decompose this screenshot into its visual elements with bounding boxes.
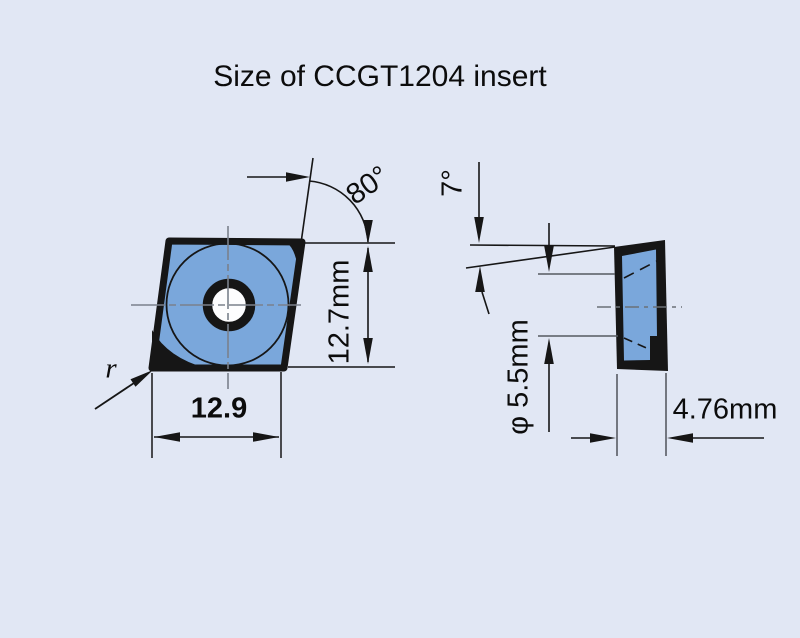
- arrowhead: [363, 338, 373, 364]
- dim-7deg-lines: [466, 162, 615, 314]
- dim-hole-diameter-label: φ 5.5mm: [505, 319, 534, 435]
- horizontal-reference-line: [470, 245, 615, 246]
- dim-width-label: 12.9: [191, 395, 247, 424]
- dim-hole-lines: [538, 223, 618, 432]
- dim-height-label: 12.7mm: [326, 260, 355, 365]
- arrowhead: [286, 172, 310, 182]
- arrowhead: [544, 246, 554, 272]
- dim-relief-angle-label: 7°: [439, 169, 468, 197]
- technical-drawing: [0, 0, 800, 638]
- edge-extension-line: [301, 158, 313, 243]
- arrowhead: [154, 432, 180, 442]
- arrowhead: [363, 246, 373, 272]
- drawing-canvas: Size of CCGT1204 insert 80° 12.7mm 12.9 …: [0, 0, 800, 638]
- arrowhead: [474, 217, 484, 243]
- leader-line: [95, 381, 137, 409]
- drawing-title: Size of CCGT1204 insert: [213, 62, 546, 92]
- front-view: [131, 226, 303, 389]
- arrowhead: [475, 266, 485, 292]
- corner-radius-label: r: [105, 355, 116, 384]
- arrowhead: [590, 433, 616, 443]
- slanted-edge-line: [466, 247, 615, 268]
- arrowhead: [363, 220, 373, 244]
- arrowhead: [667, 433, 693, 443]
- arrowhead: [131, 370, 154, 387]
- arrowhead: [253, 432, 279, 442]
- arrowhead: [544, 338, 554, 364]
- leader-line: [482, 292, 489, 314]
- corner-radius-leader: [95, 370, 153, 409]
- dim-thickness-label: 4.76mm: [673, 396, 778, 425]
- side-view: [597, 240, 682, 371]
